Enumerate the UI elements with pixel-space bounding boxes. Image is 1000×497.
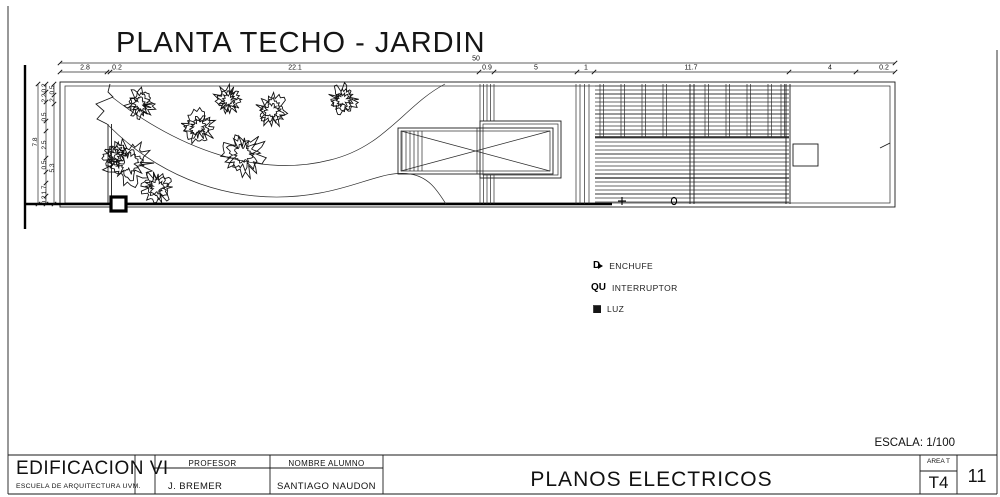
dimension-label: 2.8: [80, 65, 90, 72]
north-tick: [880, 143, 890, 148]
dimension-label: 5.3: [49, 163, 56, 172]
pool-structure: [398, 121, 561, 178]
legend-item-enchufe: D ENCHUFE: [593, 259, 653, 273]
electrical-box-symbol: [111, 197, 126, 211]
dimension-label: 2.5: [41, 140, 48, 149]
scale-note: ESCALA: 1/100: [874, 437, 955, 449]
legend-label: LUZ: [607, 304, 624, 314]
dimension-label: 7.8: [32, 137, 39, 146]
plan-border: [60, 82, 895, 207]
legend-item-interruptor: QU INTERRUPTOR: [591, 281, 678, 295]
dimension-label: 5: [534, 65, 538, 72]
student-name: SANTIAGO NAUDON: [277, 481, 376, 492]
enchufe-plan-symbol: [671, 197, 676, 204]
dimension-label: 0.5: [41, 160, 48, 169]
interruptor-icon: QU: [591, 283, 606, 293]
dimension-label: 4: [828, 65, 832, 72]
tree-symbol: [256, 92, 288, 126]
area-code: T4: [920, 473, 957, 493]
dimension-label: 0.2: [879, 65, 889, 72]
project-title: EDIFICACION VI: [16, 458, 169, 480]
plan-title: PLANTA TECHO - JARDIN: [116, 27, 486, 60]
legend-item-luz: LUZ: [593, 302, 624, 316]
dimension-label: 1: [584, 65, 588, 72]
dimension-label: 1.7: [41, 185, 48, 194]
dimension-label: 22.1: [288, 65, 302, 72]
garden-walls: [96, 84, 113, 203]
tree-symbol: [141, 172, 173, 203]
dimension-label: 11.7: [684, 65, 697, 72]
architectural-sheet: 2.80.222.10.95111.740.2500.22.20.520.57.…: [0, 0, 1000, 497]
professor-label: PROFESOR: [155, 459, 270, 468]
tree-symbol: [336, 93, 350, 107]
student-label: NOMBRE ALUMNO: [270, 459, 383, 468]
area-label: AREA T: [920, 458, 957, 465]
school-name: ESCUELA DE ARQUITECTURA UVM.: [16, 483, 141, 490]
sheet-number: 11: [957, 466, 997, 487]
tree-symbol: [329, 83, 359, 115]
professor-name: J. BREMER: [168, 481, 222, 492]
dimension-label: 0.5: [49, 85, 56, 94]
small-room-rect: [793, 144, 818, 166]
tree-symbol: [214, 84, 242, 113]
luz-icon: [593, 305, 601, 313]
dimension-label: 0.2: [112, 65, 122, 72]
tree-symbol: [264, 104, 280, 119]
wall-stripes: [480, 84, 589, 204]
roof-garden-plan-drawing: 2.80.222.10.95111.740.2500.22.20.520.57.…: [0, 0, 1000, 497]
legend-label: INTERRUPTOR: [612, 283, 678, 293]
legend-label: ENCHUFE: [609, 261, 653, 271]
dimension-label: 0.9: [482, 65, 492, 72]
sheet-title: PLANOS ELECTRICOS: [383, 468, 920, 492]
dimension-label: 2: [49, 98, 56, 102]
enchufe-icon: D: [593, 261, 603, 271]
garden-trees: [102, 83, 359, 203]
right-room: [793, 143, 890, 166]
roof-hatch: [595, 84, 790, 204]
tree-symbol: [234, 144, 253, 163]
